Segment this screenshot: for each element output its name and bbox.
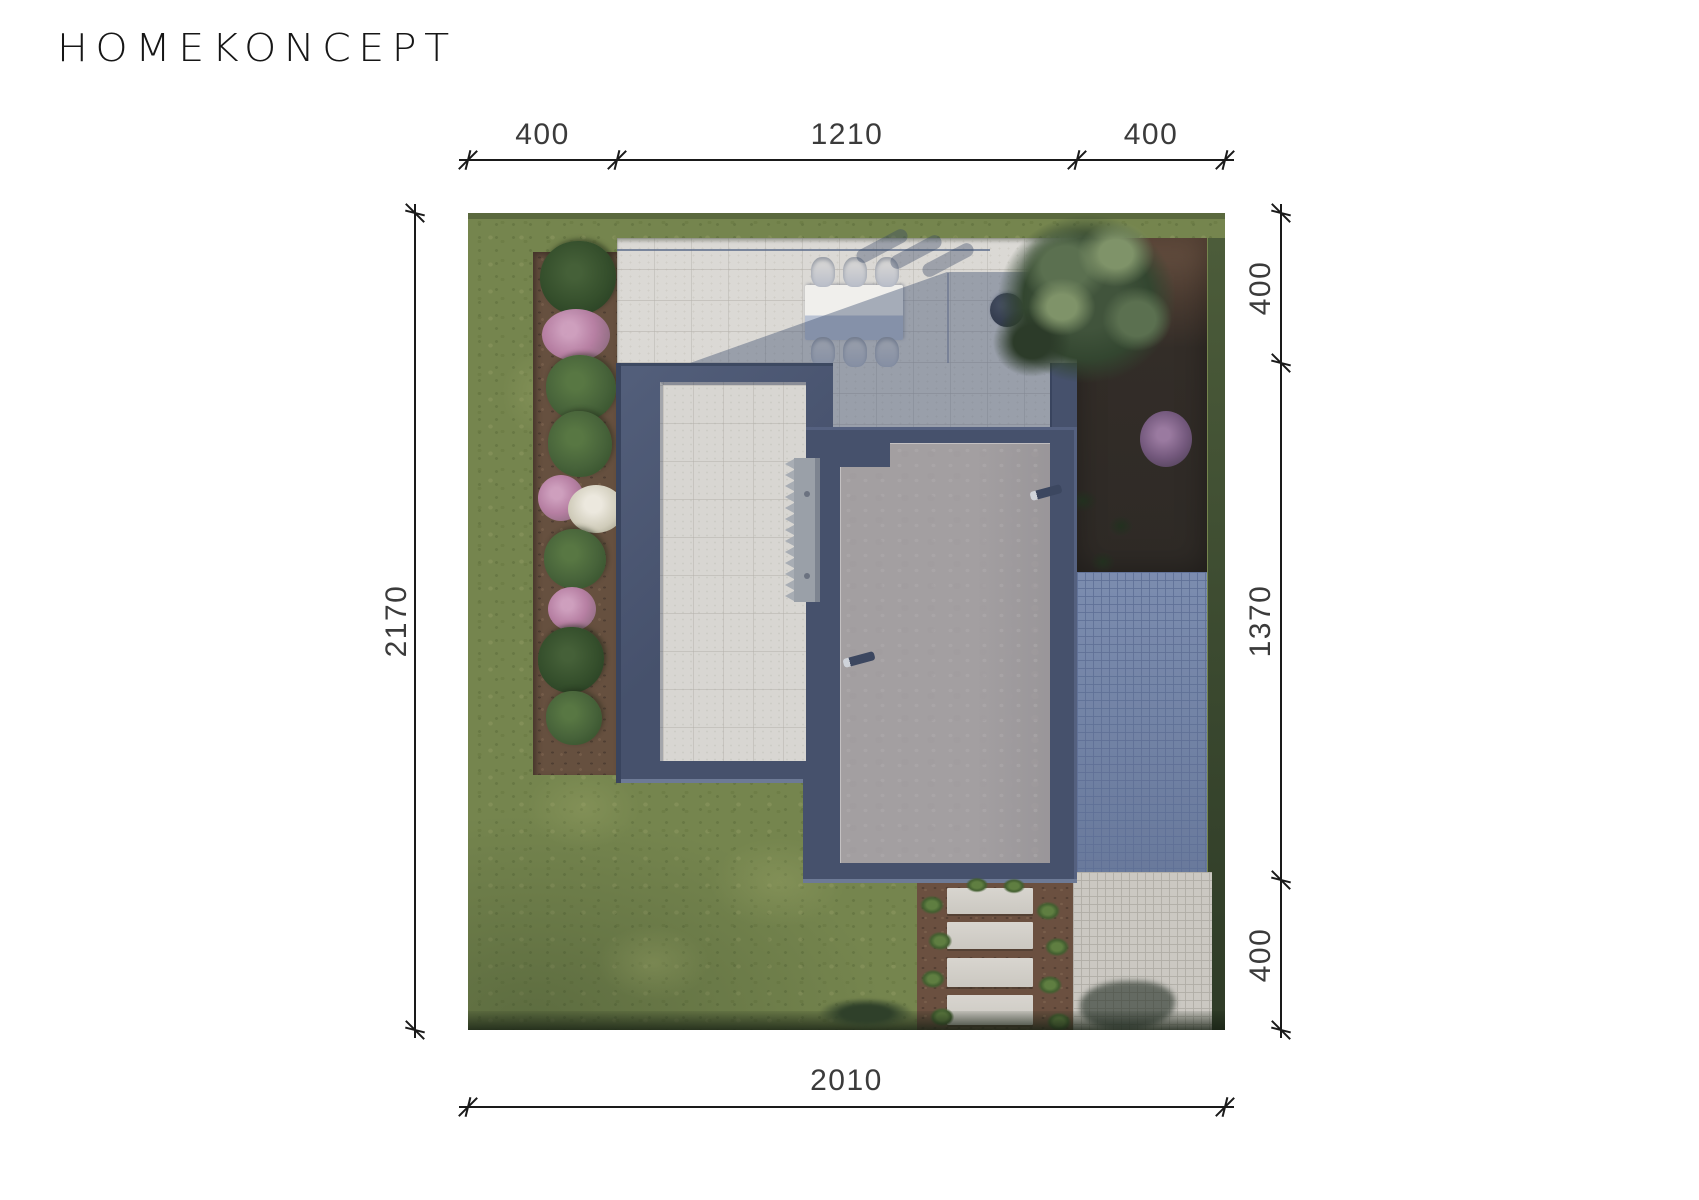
dim-top-left: 400	[468, 118, 617, 152]
louver-screen	[782, 458, 820, 602]
chair	[811, 257, 835, 287]
dim-top-right: 400	[1077, 118, 1225, 152]
flower-pink	[548, 587, 596, 631]
tuft	[920, 969, 946, 989]
dimension-line-left	[414, 204, 416, 1038]
site-plan-sheet: HOMEKONCEPT 400 1210 400 2170 400 1370 4…	[0, 0, 1699, 1200]
tuft	[1044, 937, 1070, 957]
slab	[947, 958, 1033, 987]
shrub-dot	[1108, 515, 1134, 537]
tuft	[1037, 975, 1063, 995]
hedge	[816, 997, 916, 1030]
flower-pink	[542, 309, 610, 361]
roof-notch	[840, 443, 890, 467]
flower-purple	[1140, 411, 1192, 467]
tuft	[919, 895, 945, 915]
tuft	[965, 877, 989, 893]
dim-top-middle: 1210	[617, 118, 1077, 152]
dimension-line-top	[459, 159, 1234, 161]
bush	[544, 529, 606, 589]
tuft	[1002, 878, 1026, 894]
bush-dark	[540, 241, 616, 315]
dim-right-bottom: 400	[1244, 875, 1278, 1035]
shrub-dot	[1090, 551, 1116, 573]
dimension-line-bottom	[459, 1106, 1234, 1108]
site-plan-render	[468, 213, 1225, 1030]
dim-right-middle: 1370	[1244, 541, 1278, 701]
homekoncept-logo: HOMEKONCEPT	[57, 26, 457, 70]
dim-left-total: 2170	[380, 541, 414, 701]
bush-dark	[538, 627, 604, 693]
dimension-line-right	[1280, 204, 1282, 1038]
dim-right-top: 400	[1244, 208, 1278, 368]
bush	[546, 691, 602, 745]
slab	[947, 922, 1033, 949]
tuft	[927, 931, 953, 951]
tuft	[1035, 901, 1061, 921]
driveway-blue-pavers	[1077, 572, 1207, 872]
bush	[548, 411, 612, 477]
grass-patch	[578, 913, 728, 1013]
dim-bottom-total: 2010	[468, 1064, 1225, 1098]
tree-light	[1020, 271, 1104, 343]
